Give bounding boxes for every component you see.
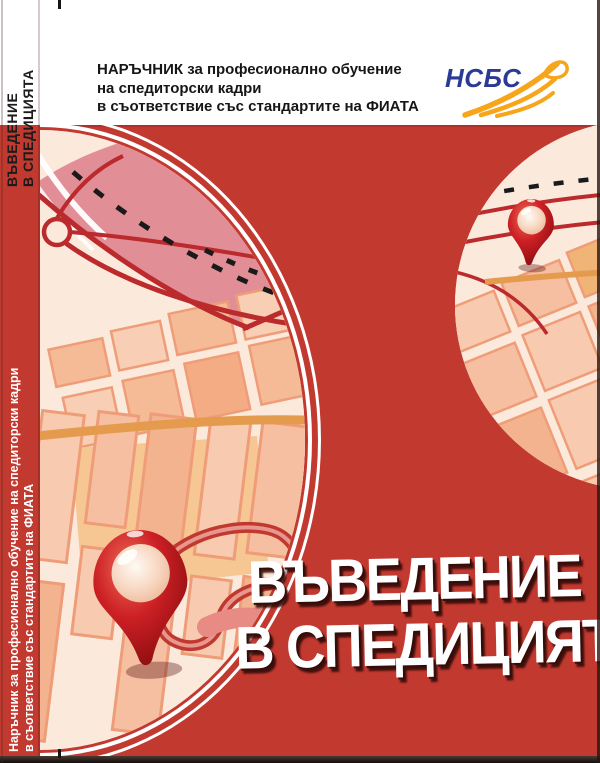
spine-subtitle-line1: Наръчник за професионално обучение на сп… [7,352,22,752]
cover-header: НАРЪЧНИК за професионално обучение на сп… [40,0,600,125]
handbook-subtitle: НАРЪЧНИК за професионално обучение на сп… [97,61,419,117]
crop-mark-top [58,0,61,9]
book-title: ВЪВЕДЕНИЕ В СПЕДИЦИЯТА [233,543,597,682]
book-cover: НАРЪЧНИК за професионално обучение на сп… [0,0,600,763]
spine-title-line1: ВЪВЕДЕНИЕ [4,47,20,187]
front-cover: НАРЪЧНИК за професионално обучение на сп… [40,0,600,763]
crop-mark-bottom [58,749,61,758]
book-title-line1: ВЪВЕДЕНИЕ [233,543,595,616]
bottom-edge-shadow [0,756,600,763]
book-title-line2: В СПЕДИЦИЯТА [235,608,597,681]
spine-fold-line [38,0,40,763]
handbook-subtitle-line1: НАРЪЧНИК за професионално обучение [97,61,419,80]
book-spine: ВЪВЕДЕНИЕ В СПЕДИЦИЯТА Наръчник за профе… [0,0,40,763]
spine-subtitle: Наръчник за професионално обучение на сп… [7,352,37,752]
handbook-subtitle-line2: на спедиторски кадри [97,80,419,99]
spine-subtitle-line2: в съответствие със стандартите на ФИАТА [22,352,37,752]
nsbs-logo-text: НСБС [445,63,521,94]
nsbs-logo: НСБС [443,53,578,121]
spine-title-line2: В СПЕДИЦИЯТА [20,47,36,187]
handbook-subtitle-line3: в съответствие със стандартите на ФИАТА [97,98,419,117]
spine-title: ВЪВЕДЕНИЕ В СПЕДИЦИЯТА [4,47,36,187]
left-edge-shadow [1,0,3,763]
